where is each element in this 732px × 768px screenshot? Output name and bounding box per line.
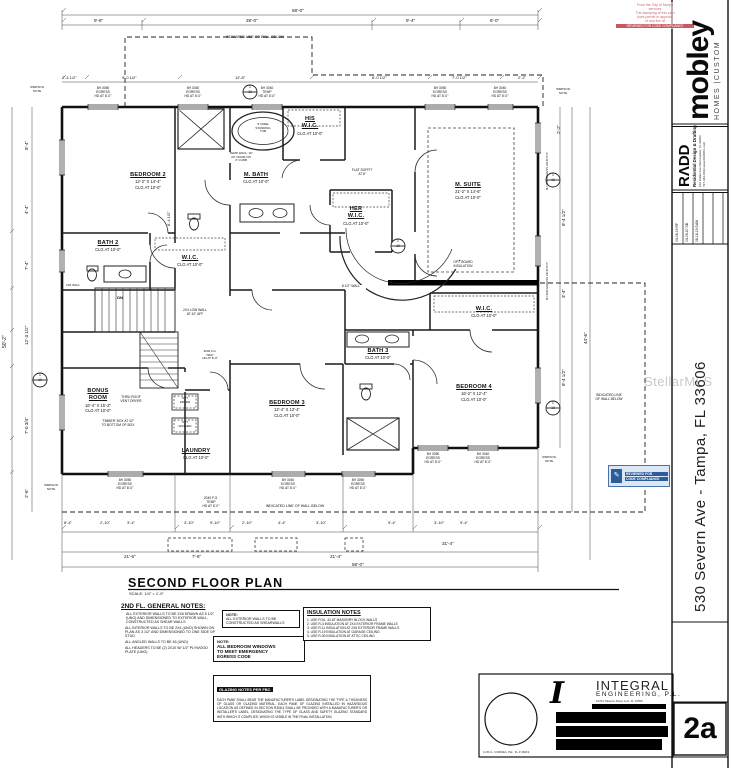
radd-block: RΛDD Residential Design & Drafting 102 I… bbox=[677, 125, 706, 187]
reviewed-stamp-icon: ✎ bbox=[611, 469, 622, 483]
reviewed-stamp-line: REVIEWED FOR bbox=[625, 472, 668, 476]
plan-title: SECOND FLOOR PLAN bbox=[128, 576, 283, 590]
room-label-bedroom3: BEDROOM 312'-4" X 13'-4"CLG AT 10'-0" bbox=[257, 400, 317, 418]
dim-label: 7'-0 3/4" bbox=[24, 417, 29, 434]
simpson-note: SIMPSON NOTE bbox=[24, 86, 50, 93]
room-label-wic-center: W.I.C.CLG AT 10'-0" bbox=[165, 255, 215, 268]
dim-label: 8'-4 1/2" bbox=[561, 209, 566, 226]
dim-label: 2'-10" bbox=[100, 520, 110, 525]
section-marker-label: 110 bbox=[390, 239, 406, 249]
dim-label: 7'-4" bbox=[24, 261, 29, 270]
general-note-item: ALL ANGLED WALLS TO BE 45 (UNO) bbox=[121, 640, 215, 644]
insulation-note-item: 5. USE R-30 INSULATION AT ATTIC CEILING bbox=[307, 634, 427, 638]
wall-thickness-note: 8 1/2" WALL bbox=[336, 285, 366, 289]
dim-label: 3'-4" bbox=[561, 289, 566, 298]
room-label-bath3: BATH 3CLG AT 10'-0" bbox=[353, 348, 403, 361]
dim-label: 12'-8" bbox=[235, 75, 245, 80]
revision-entry: 04-08-19 RF bbox=[675, 223, 679, 242]
floorplan-sheet: StellarMLS From the City of Tampa servic… bbox=[0, 0, 732, 768]
wall-2x6-note: 2X6 WALL bbox=[62, 284, 84, 287]
dim-label: 21'-4" bbox=[330, 554, 342, 559]
dim-label: 2'-6" bbox=[24, 489, 29, 498]
radd-address: 727-442-0193 www.RADDFL.com bbox=[702, 125, 706, 187]
window-tag: 8H 3040 EGRESS HD AT 8'-0" bbox=[273, 479, 303, 490]
shearwall-note-box: NOTE: ALL EXTERIOR WALLS TO BE CONSTRUCT… bbox=[222, 610, 300, 628]
simpson-note: SIMPSON NOTE bbox=[550, 88, 576, 95]
dim-label: 50'-2" bbox=[2, 335, 8, 348]
room-label-wic4: W.I.C.CLG AT 10'-0" bbox=[459, 306, 509, 319]
room-label-laundry: LAUNDRYCLG AT 10'-0" bbox=[171, 448, 221, 461]
window-tag: 8H 3030 EGRESS HD AT 8'-0" bbox=[545, 262, 549, 300]
wall-below-note: INDICATED LINE OF WALL BELOW bbox=[250, 504, 340, 508]
dim-label: 8'-4 1/2" bbox=[561, 369, 566, 386]
dim-label: 9'-8" bbox=[94, 18, 103, 23]
window-tag: 8H 3050 EGRESS HD AT 8'-0" bbox=[425, 87, 455, 98]
dim-label: 44'-6" bbox=[583, 332, 588, 344]
dim-label: 4'-4" bbox=[24, 205, 29, 214]
dim-label: 9'-4" bbox=[406, 18, 415, 23]
soffit-note: FLAT SOFFIT AT 8' bbox=[348, 169, 376, 177]
room-label-msuite: M. SUITE21'-2" X 14'-6"CLG AT 10'-0" bbox=[438, 182, 498, 200]
window-tag: 8H 3030 EGRESS HD AT 8'-0" bbox=[545, 152, 549, 190]
seal-circle bbox=[485, 693, 537, 745]
revision-entry: 08-18-19 DAM bbox=[695, 220, 699, 242]
vent-note: THRU ROOF VENT DRYER bbox=[116, 396, 146, 404]
shower-enclosure-note: TEMP. ENCL. W/ 24" DOOR ON 4" CURB bbox=[224, 152, 258, 163]
tray-window-tag: 3040 F.G. TRAY HD AT 8'-0" bbox=[196, 350, 224, 361]
engineer-pe-line: LUIS G. CORREA, P.E., FL # 46019 bbox=[483, 750, 529, 754]
dim-label: 28'-0" bbox=[246, 18, 258, 23]
reviewed-stamp-line: CODE COMPLIANCE bbox=[625, 477, 668, 481]
dim-label: 2'-4 1/2" bbox=[62, 75, 77, 80]
window-tag: 8H 3040 EGRESS HD AT 8'-0" bbox=[485, 87, 515, 98]
room-label-her-wic: HER W.I.C.CLG AT 10'-0" bbox=[336, 206, 376, 226]
dim-label: 21'-6" bbox=[124, 554, 136, 559]
section-marker-label: 110 bbox=[545, 401, 561, 411]
dim-label: 31'-4" bbox=[442, 541, 454, 546]
dim-label: 4'-4" bbox=[278, 520, 286, 525]
dim-label: 8'-0" bbox=[490, 18, 499, 23]
dim-label: 7'-6" bbox=[192, 554, 201, 559]
revision-entry: 04-09-20 SB bbox=[685, 223, 689, 242]
plan-scale: SCALE: 1/4" = 1'-0" bbox=[129, 591, 164, 596]
simpson-note: SIMPSON NOTE bbox=[38, 484, 64, 491]
dim-label: 58'-0" bbox=[352, 562, 364, 567]
egress-note-box: NOTE: ALL BEDROOM WINDOWS TO MEET EMERGE… bbox=[213, 636, 305, 662]
dim-label: 7'-0 1/2" bbox=[452, 75, 467, 80]
dim-label: 8'-4" bbox=[64, 520, 72, 525]
stairs-dn-label: DN bbox=[112, 296, 128, 301]
dim-label: 2'-2" bbox=[556, 125, 561, 134]
section-marker-label: 110 bbox=[32, 373, 48, 383]
insulation-notes-box: INSULATION NOTES 1. USE FOIL .42 AT MASO… bbox=[303, 607, 431, 641]
dim-label: 3'-4" bbox=[127, 520, 135, 525]
dim-label: 9'-0 1/2" bbox=[122, 75, 137, 80]
room-label-his-wic: HIS W.I.C.CLG AT 10'-0" bbox=[290, 116, 330, 136]
dim-label: 9'-4" bbox=[388, 520, 396, 525]
builder-logo: mobley HOMES |CUSTOM bbox=[684, 21, 722, 120]
floorplan-drawing bbox=[0, 0, 732, 768]
window-tag: 8H 3050 EGRESS HD AT 8'-0" bbox=[88, 87, 118, 98]
window-tag: 8H 3050 EGRESS HD AT 8'-0" bbox=[110, 479, 140, 490]
low-wall-note: 2X4 LOW WALL AT 42" AFF bbox=[178, 309, 212, 317]
room-label-mbath: M. BATHCLG AT 10'-0" bbox=[231, 172, 281, 185]
reviewed-stamp: ✎ REVIEWED FOR CODE COMPLIANCE bbox=[608, 465, 670, 487]
window-tag: 8H 3050 EGRESS HD AT 8'-0" bbox=[418, 453, 448, 464]
general-notes: 2ND FL. GENERAL NOTES: ALL EXTERIOR WALL… bbox=[121, 603, 215, 656]
room-label-bath2: BATH 2CLG AT 10'-0" bbox=[83, 240, 133, 253]
sheet-number: 2a bbox=[674, 703, 726, 755]
general-note-item: ALL HEADERS TO BE (2) 2X10 W/ 1/2" PLYWO… bbox=[121, 646, 215, 654]
dim-label: 8'-4 1/2" bbox=[166, 211, 171, 226]
dim-label: 58'-0" bbox=[292, 8, 304, 13]
window-tag: 8H 3050 EGRESS HD AT 8'-0" bbox=[343, 479, 373, 490]
window-tag: 2040 F.G. TEMP HD AT 8'-0" bbox=[196, 497, 226, 508]
opt-board-note: OPT. BOARD INSULATION bbox=[448, 261, 478, 269]
wall-below-note: INDICATED LINE OF WALL BELOW bbox=[210, 35, 300, 39]
general-note-item: ALL INTERIOR WALLS TO BE 2X4 (UNO) SHOWN… bbox=[121, 626, 215, 638]
project-address: 530 Severn Ave - Tampa, FL 33606 bbox=[692, 361, 709, 612]
redaction-bars bbox=[556, 704, 668, 750]
glazing-notes-body: EACH PANE SHALL BEAR THE MANUFACTURER'S … bbox=[217, 698, 367, 720]
room-label-bedroom4: BEDROOM 416'-2" X 12'-4"CLG AT 10'-0" bbox=[444, 384, 504, 402]
dim-label: 3'-10" bbox=[434, 520, 444, 525]
radd-logo: RΛDD bbox=[677, 125, 692, 187]
window-tag: 8H 3040 EGRESS HD AT 8'-0" bbox=[468, 453, 498, 464]
opt-washer-label: OPT WASHER bbox=[172, 421, 198, 428]
stairs-icon bbox=[95, 288, 178, 388]
section-marker-label: 110 bbox=[545, 173, 561, 183]
dim-label: 9'-4" bbox=[460, 520, 468, 525]
engineer-name2: ENGINEERING, P.L. bbox=[596, 691, 681, 698]
builder-logo-text: mobley bbox=[684, 21, 714, 120]
section-marker-label: 110 bbox=[242, 85, 258, 95]
general-note-item: ALL EXTERIOR WALLS TO BE 2X6 DRAWN AS 5 … bbox=[121, 612, 215, 624]
wall-below-note: INDICATED LINE OF WALL BELOW bbox=[588, 394, 630, 402]
dim-label: 3'-10" bbox=[316, 520, 326, 525]
room-label-bedroom2: BEDROOM 212'-2" X 14'-4"CLG AT 10'-0" bbox=[118, 172, 178, 190]
dim-label: 9'-10" bbox=[210, 520, 220, 525]
engineer-logo-icon: I bbox=[550, 676, 564, 711]
dim-label: 3'-10" bbox=[184, 520, 194, 525]
window-tag: 8H 3040 EGRESS HD AT 8'-0" bbox=[178, 87, 208, 98]
glazing-notes-heading: GLAZING NOTES PER FBC bbox=[217, 687, 273, 692]
dim-label: 2'-10" bbox=[242, 520, 252, 525]
dim-label: 8'-4" bbox=[24, 141, 29, 150]
dim-label: 12'-3 1/2" bbox=[24, 326, 29, 345]
dim-label: 8'-0 1/2" bbox=[372, 75, 387, 80]
dim-label: 2'-2" bbox=[518, 75, 526, 80]
tub-note: 5' FREE STANDING TUB bbox=[249, 123, 277, 134]
general-notes-heading: 2ND FL. GENERAL NOTES: bbox=[121, 603, 215, 610]
simpson-note: SIMPSON NOTE bbox=[536, 456, 562, 463]
builder-logo-sub: HOMES |CUSTOM bbox=[714, 21, 722, 120]
insulation-notes-heading: INSULATION NOTES bbox=[307, 610, 427, 616]
engineer-address: 16764 Tobacco Road, Lutz, FL 33558 bbox=[596, 699, 643, 703]
timber-box-note: 'TIMBER' BOX AT 42" TO BOTTOM OF BOX bbox=[96, 420, 140, 428]
glazing-notes-box: GLAZING NOTES PER FBC EACH PANE SHALL BE… bbox=[213, 675, 371, 722]
opt-dryer-label: OPT DRYER bbox=[172, 397, 198, 404]
